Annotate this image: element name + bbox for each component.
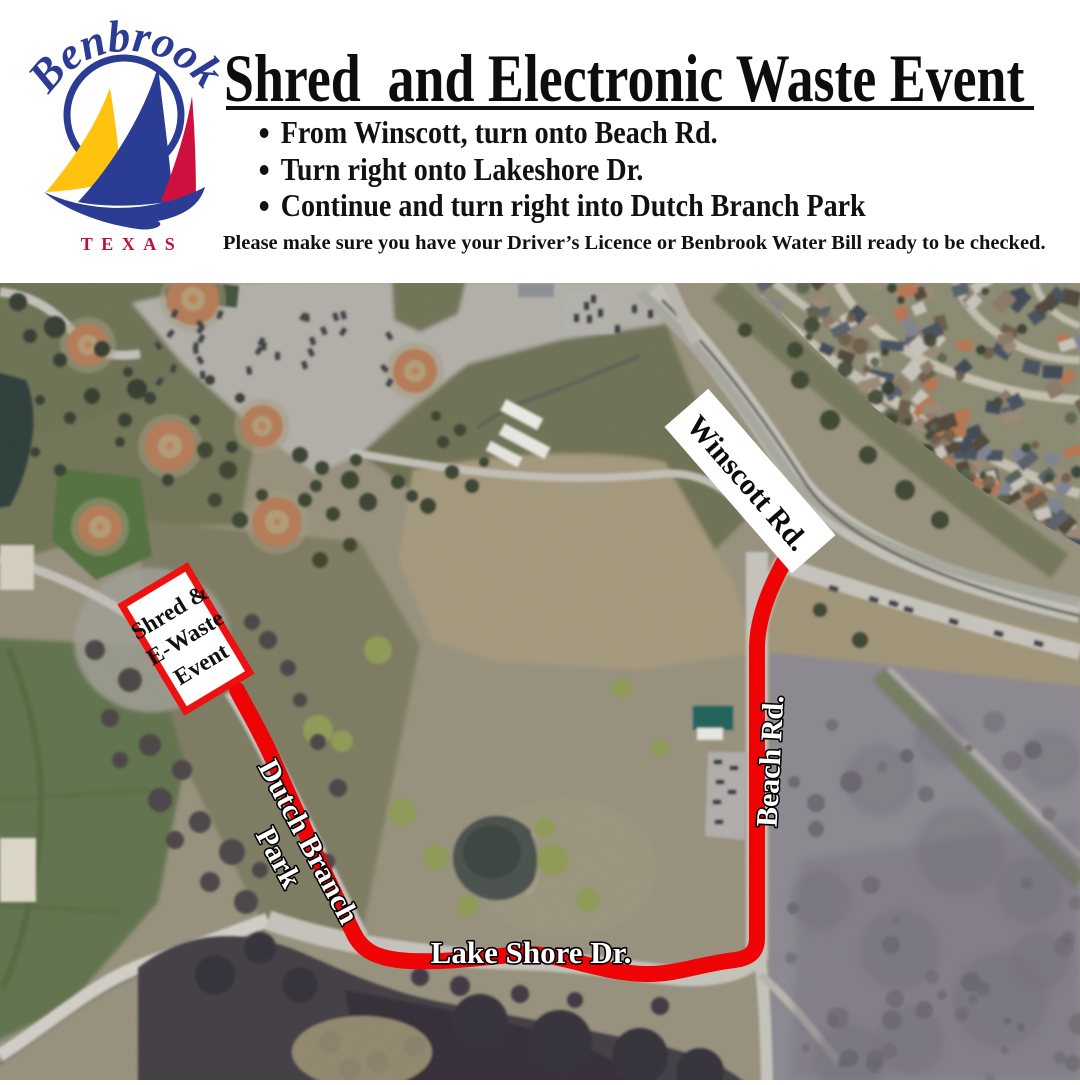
svg-text:Benbrook: Benbrook [17,10,234,101]
svg-text:Lake Shore Dr.: Lake Shore Dr. [431,935,632,970]
svg-text:TEXAS: TEXAS [81,234,184,254]
svg-text:Beach Rd.: Beach Rd. [751,695,791,828]
